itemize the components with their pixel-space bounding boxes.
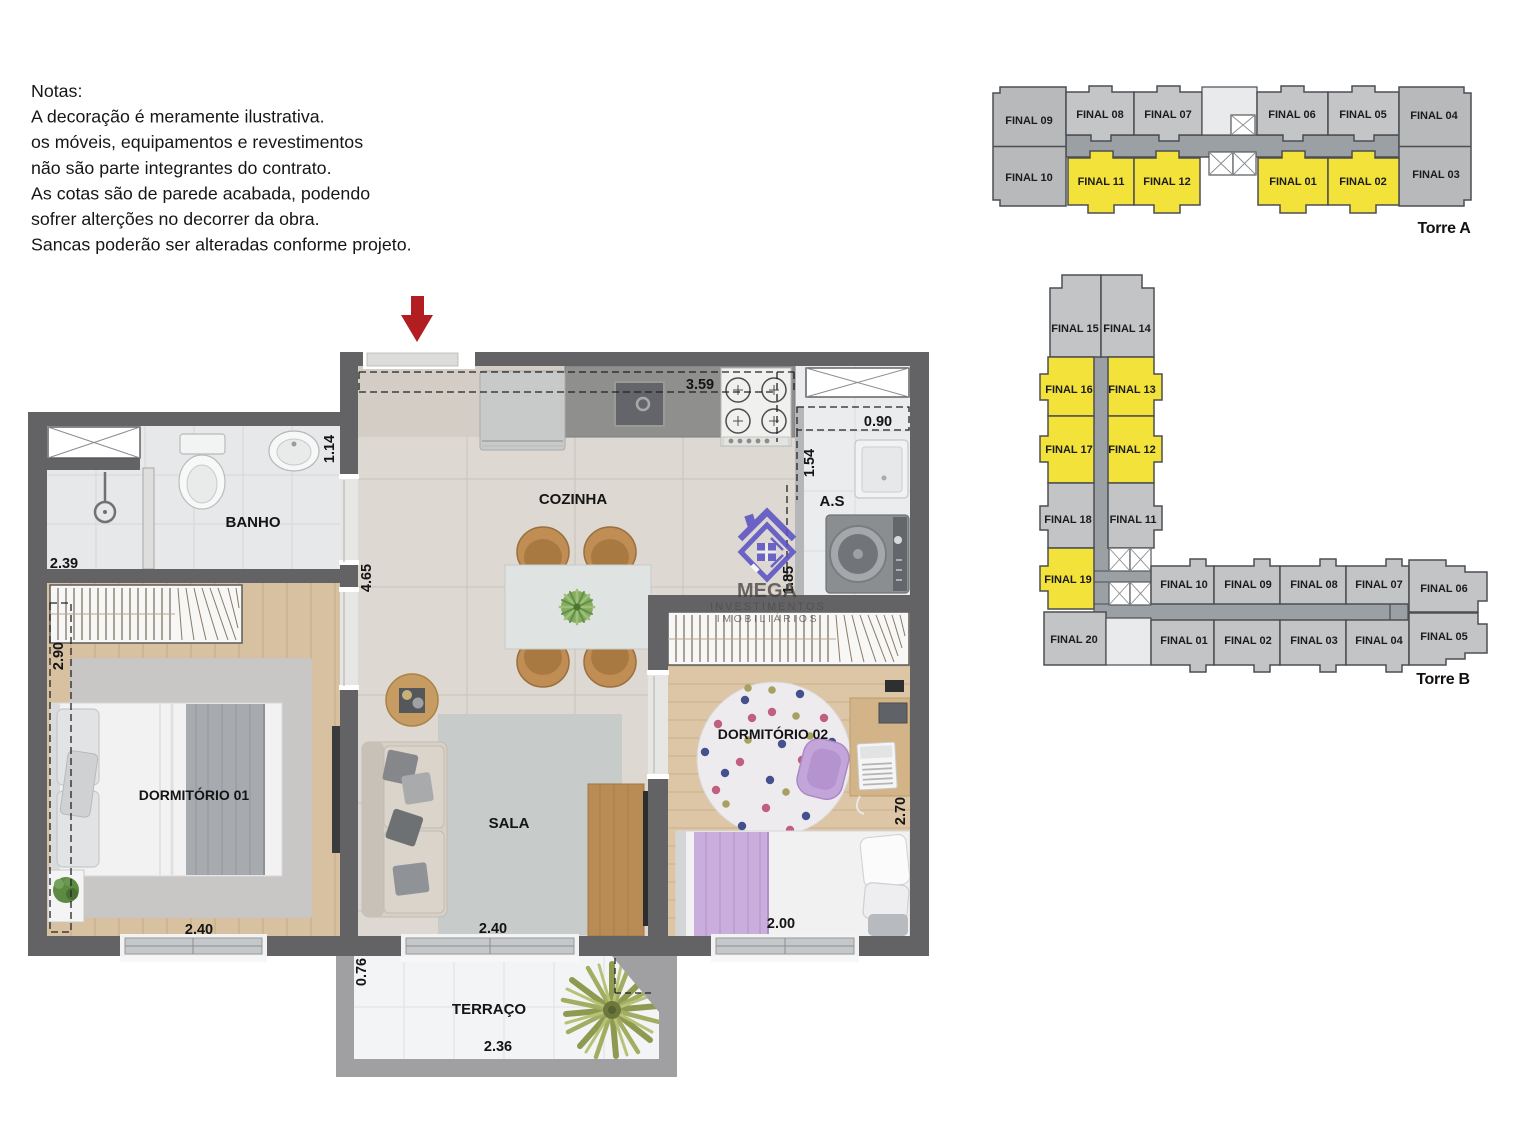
svg-text:0.90: 0.90 [864,414,892,430]
svg-text:FINAL 07: FINAL 07 [1144,109,1191,121]
svg-text:FINAL 01: FINAL 01 [1269,176,1316,188]
svg-text:2.40: 2.40 [185,922,213,938]
svg-text:FINAL 02: FINAL 02 [1224,635,1271,647]
svg-text:2.39: 2.39 [50,556,78,572]
svg-text:INVESTIMENTOS: INVESTIMENTOS [710,601,826,613]
svg-text:FINAL 17: FINAL 17 [1045,444,1092,456]
svg-text:FINAL 07: FINAL 07 [1355,579,1402,591]
svg-text:FINAL 11: FINAL 11 [1110,514,1157,526]
svg-text:Torre A: Torre A [1417,220,1471,237]
svg-text:BANHO: BANHO [226,514,281,531]
svg-text:A.S: A.S [819,493,844,510]
svg-text:FINAL 06: FINAL 06 [1420,583,1467,595]
svg-text:FINAL 04: FINAL 04 [1410,110,1458,122]
svg-text:FINAL 09: FINAL 09 [1224,579,1271,591]
svg-text:4.65: 4.65 [359,564,375,592]
svg-text:As cotas são de parede acabada: As cotas são de parede acabada, podendo [31,183,370,203]
svg-text:Sancas poderão ser alteradas c: Sancas poderão ser alteradas conforme pr… [31,235,412,255]
svg-text:FINAL 05: FINAL 05 [1420,631,1467,643]
svg-text:FINAL 02: FINAL 02 [1339,176,1386,188]
svg-text:FINAL 03: FINAL 03 [1290,635,1337,647]
svg-text:FINAL 09: FINAL 09 [1005,115,1052,127]
svg-text:não são parte integrantes do c: não são parte integrantes do contrato. [31,158,332,178]
svg-text:FINAL 12: FINAL 12 [1143,176,1190,188]
svg-text:IMOBILIÁRIOS: IMOBILIÁRIOS [717,612,819,625]
svg-text:3.59: 3.59 [686,377,714,393]
svg-text:SALA: SALA [489,815,530,832]
svg-text:2.70: 2.70 [893,797,909,825]
svg-text:FINAL 06: FINAL 06 [1268,109,1315,121]
svg-text:2.90: 2.90 [51,642,67,670]
svg-text:1.54: 1.54 [802,449,818,477]
svg-text:FINAL 12: FINAL 12 [1108,444,1155,456]
svg-text:TERRAÇO: TERRAÇO [452,1001,526,1018]
svg-text:DORMITÓRIO 02: DORMITÓRIO 02 [718,725,829,742]
svg-text:FINAL 16: FINAL 16 [1045,384,1092,396]
svg-text:DORMITÓRIO 01: DORMITÓRIO 01 [139,786,250,803]
svg-text:A decoração é meramente ilustr: A decoração é meramente ilustrativa. [31,107,325,127]
svg-text:FINAL 08: FINAL 08 [1290,579,1337,591]
svg-text:0.76: 0.76 [354,958,370,986]
svg-text:2.36: 2.36 [484,1039,512,1055]
svg-text:FINAL 08: FINAL 08 [1076,109,1123,121]
svg-text:FINAL 03: FINAL 03 [1412,169,1459,181]
svg-text:sofrer alterções no decorrer d: sofrer alterções no decorrer da obra. [31,209,320,229]
svg-text:2.00: 2.00 [767,916,795,932]
svg-text:FINAL 18: FINAL 18 [1044,514,1091,526]
svg-text:FINAL 13: FINAL 13 [1108,384,1155,396]
svg-text:FINAL 14: FINAL 14 [1103,323,1151,335]
svg-text:FINAL 20: FINAL 20 [1050,634,1097,646]
svg-text:MEGA: MEGA [737,580,797,602]
svg-text:FINAL 10: FINAL 10 [1005,172,1052,184]
svg-text:2.40: 2.40 [479,921,507,937]
svg-text:FINAL 01: FINAL 01 [1160,635,1207,647]
svg-text:os móveis, equipamentos e reve: os móveis, equipamentos e revestimentos [31,132,363,152]
svg-text:1.14: 1.14 [322,435,338,463]
svg-text:FINAL 19: FINAL 19 [1044,574,1091,586]
svg-text:COZINHA: COZINHA [539,491,607,508]
svg-text:FINAL 15: FINAL 15 [1051,323,1098,335]
svg-text:FINAL 04: FINAL 04 [1355,635,1403,647]
svg-text:Torre B: Torre B [1416,671,1470,688]
svg-text:FINAL 05: FINAL 05 [1339,109,1386,121]
svg-text:FINAL 11: FINAL 11 [1078,176,1125,188]
svg-text:Notas:: Notas: [31,81,82,101]
svg-text:FINAL 10: FINAL 10 [1160,579,1207,591]
